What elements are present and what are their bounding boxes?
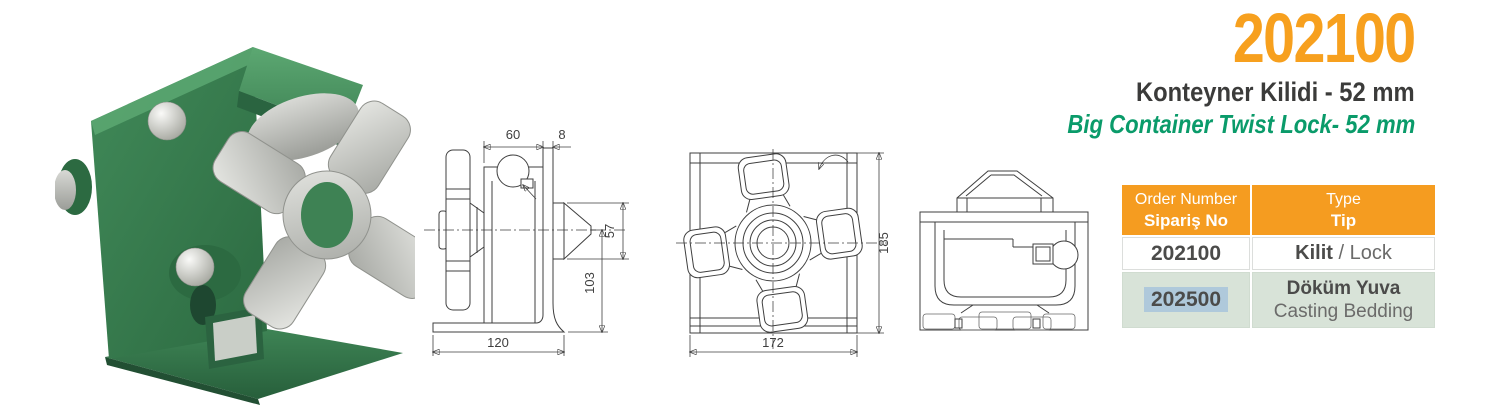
table-header-row: Order Number Sipariş No Type Tip [1122, 185, 1435, 235]
lock-body [484, 167, 543, 323]
product-title-block: 202100 Konteyner Kilidi - 52 mm Big Cont… [1006, 6, 1415, 138]
order-table: Order Number Sipariş No Type Tip 202100 … [1120, 183, 1437, 330]
dim-label-plate-thickness: 8 [558, 127, 565, 142]
cell-order-number: 202500 [1122, 272, 1250, 328]
dimension-172: 172 [690, 335, 857, 357]
dim-label-base-width: 120 [487, 335, 509, 350]
product-name-turkish: Konteyner Kilidi - 52 mm [1006, 79, 1415, 106]
product-photo-twist-lock [55, 5, 415, 405]
dimension-8: 8 [553, 127, 571, 147]
dim-label-height: 185 [876, 232, 891, 254]
dim-label-cone-height: 57 [602, 224, 617, 238]
cell-type: Kilit / Lock [1252, 237, 1435, 270]
technical-drawing-side-view: 60 8 57 103 120 [422, 125, 632, 375]
catalog-page: 60 8 57 103 120 [0, 0, 1503, 416]
dim-label-width: 172 [762, 335, 784, 350]
product-illustration [55, 44, 415, 405]
table-row: 202100 Kilit / Lock [1122, 237, 1435, 270]
header-cell-type: Type Tip [1252, 185, 1435, 235]
cell-type: Döküm Yuva Casting Bedding [1252, 272, 1435, 328]
product-name-english: Big Container Twist Lock- 52 mm [1006, 111, 1415, 138]
table-row: 202500 Döküm Yuva Casting Bedding [1122, 272, 1435, 328]
latch-ball [1050, 241, 1078, 269]
technical-drawing-rear-view [915, 160, 1095, 340]
ball-pin-bottom [176, 248, 214, 286]
highlighted-order-number: 202500 [1144, 287, 1228, 312]
cone-tip [564, 203, 591, 259]
product-code-text: 202100 [1233, 6, 1415, 70]
product-code: 202100 [1006, 6, 1415, 70]
header-cell-order-number: Order Number Sipariş No [1122, 185, 1250, 235]
ball-pin-top [148, 102, 186, 140]
cell-order-number: 202100 [1122, 237, 1250, 270]
dimension-120: 120 [433, 335, 564, 356]
dim-label-lower-height: 103 [582, 272, 597, 294]
technical-drawing-front-view: 185 172 [672, 145, 902, 365]
dim-label-top-width: 60 [506, 127, 520, 142]
